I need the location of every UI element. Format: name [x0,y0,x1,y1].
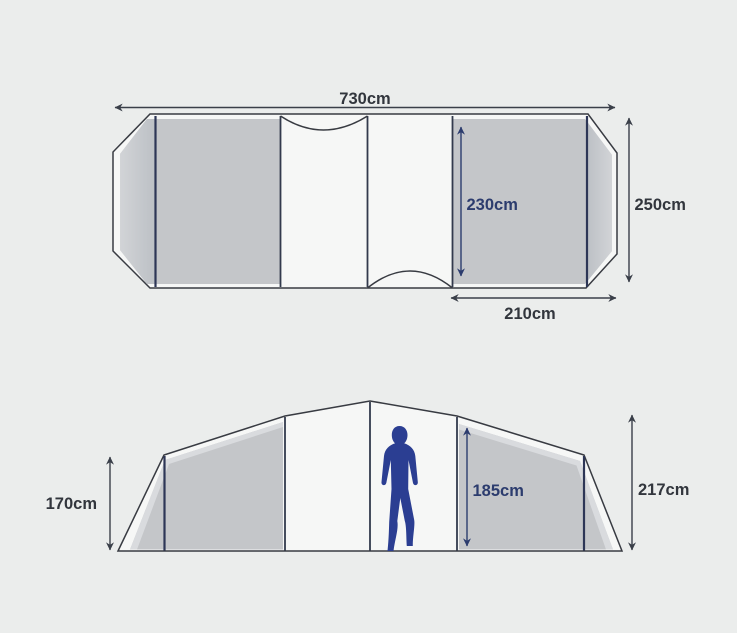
dim-bedroom-width-label: 210cm [504,305,555,323]
dim-wall-height-label: 170cm [46,495,97,513]
floor-plan: 730cm 250cm 230cm 210cm [113,90,686,323]
dim-total-depth: 250cm [629,118,686,282]
dim-total-depth-label: 250cm [635,196,686,214]
tent-dimensions-diagram: 730cm 250cm 230cm 210cm [0,0,737,633]
dim-total-width: 730cm [115,90,615,108]
dim-peak-height-label: 217cm [638,481,689,499]
dim-wall-height: 170cm [46,457,110,550]
dim-bedroom-width: 210cm [451,298,616,323]
dim-peak-height: 217cm [632,415,689,550]
dim-interior-height-label: 185cm [473,482,524,500]
dim-total-width-label: 730cm [339,90,390,108]
side-view: 170cm 185cm 217cm [46,401,690,551]
dim-bedroom-depth-label: 230cm [467,196,518,214]
